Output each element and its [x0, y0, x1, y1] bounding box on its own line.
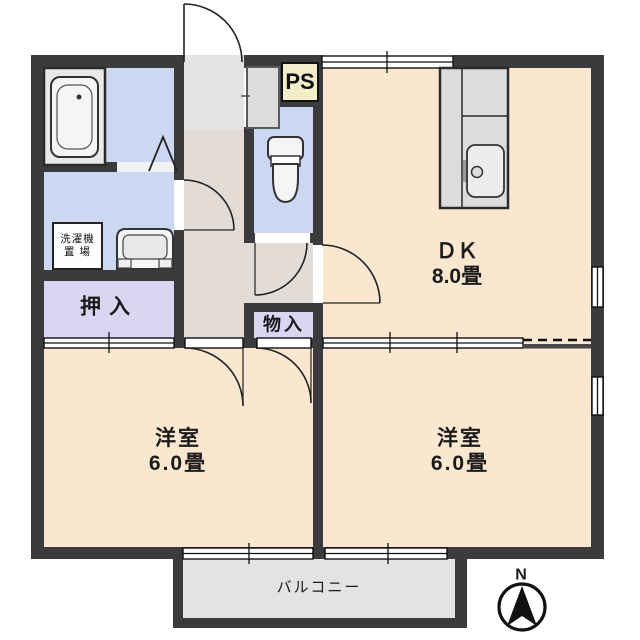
wall-top-right: [453, 55, 604, 68]
shoe-cabinet-icon: [246, 66, 280, 129]
wall-left: [31, 55, 44, 559]
wall-post-b: [243, 338, 257, 348]
wall-toilet-door-post-left: [244, 233, 255, 243]
monoire-door-opening: [257, 338, 311, 348]
wall-toilet-left: [244, 127, 254, 243]
compass-icon: [499, 584, 545, 630]
wall-right: [591, 55, 604, 559]
genkan-floor: [183, 55, 244, 130]
dk-floor: [323, 68, 591, 344]
dk-size: 8.0畳: [432, 265, 482, 290]
wall-dk-left-upper: [313, 107, 323, 245]
bathroom-floor: [44, 68, 174, 162]
north-arrow-icon: [507, 586, 537, 626]
wall-post-c: [311, 338, 323, 348]
ps-box: PS: [281, 62, 319, 102]
bedroom-left-size: 6.0畳: [149, 452, 207, 477]
label-bedroom-left: 洋室 6.0畳: [149, 427, 207, 477]
corridor-ext-floor: [244, 243, 313, 303]
wall-bedroom-divider: [313, 348, 323, 547]
bedroom-right-size: 6.0畳: [431, 452, 489, 477]
label-oshiire: 押入: [80, 296, 138, 321]
balcony-wall-bottom: [173, 618, 467, 628]
laundry-label-line2: 置 場: [64, 246, 91, 259]
ps-label: PS: [285, 69, 314, 95]
wall-post-a: [174, 338, 185, 348]
label-compass-north: N: [515, 567, 527, 586]
laundry-label-line1: 洗濯機: [60, 233, 95, 246]
balcony-wall-left: [173, 550, 183, 628]
wall-washroom-bottom: [31, 270, 184, 281]
balcony-name: バルコニー: [277, 579, 362, 596]
label-bedroom-right: 洋室 6.0畳: [431, 427, 489, 477]
wall-bottom: [31, 547, 604, 559]
wall-monoire-top: [244, 303, 323, 312]
label-balcony: バルコニー: [277, 579, 362, 597]
entrance-door: [184, 4, 242, 62]
dk-name: ＤＫ: [432, 240, 482, 265]
bedroom-left-name: 洋室: [149, 427, 207, 452]
bathroom-doorway-floor: [117, 162, 174, 172]
corridor-floor: [184, 130, 244, 338]
wall-top-left: [31, 55, 183, 68]
bedroom-right-name: 洋室: [431, 427, 489, 452]
compass-north-letter: N: [515, 567, 527, 584]
monoire-name: 物入: [263, 314, 305, 334]
laundry-space-box: 洗濯機 置 場: [52, 222, 103, 270]
oshiire-name: 押入: [80, 296, 138, 319]
washroom-door-opening: [174, 180, 184, 230]
balcony-wall-right: [455, 550, 467, 628]
bedroom-left-door-opening: [185, 338, 243, 348]
wall-bath-bottom: [31, 162, 117, 172]
label-dk: ＤＫ 8.0畳: [432, 240, 482, 290]
floor-plan: PS 洗濯機 置 場: [0, 0, 640, 640]
label-monoire: 物入: [263, 314, 305, 335]
